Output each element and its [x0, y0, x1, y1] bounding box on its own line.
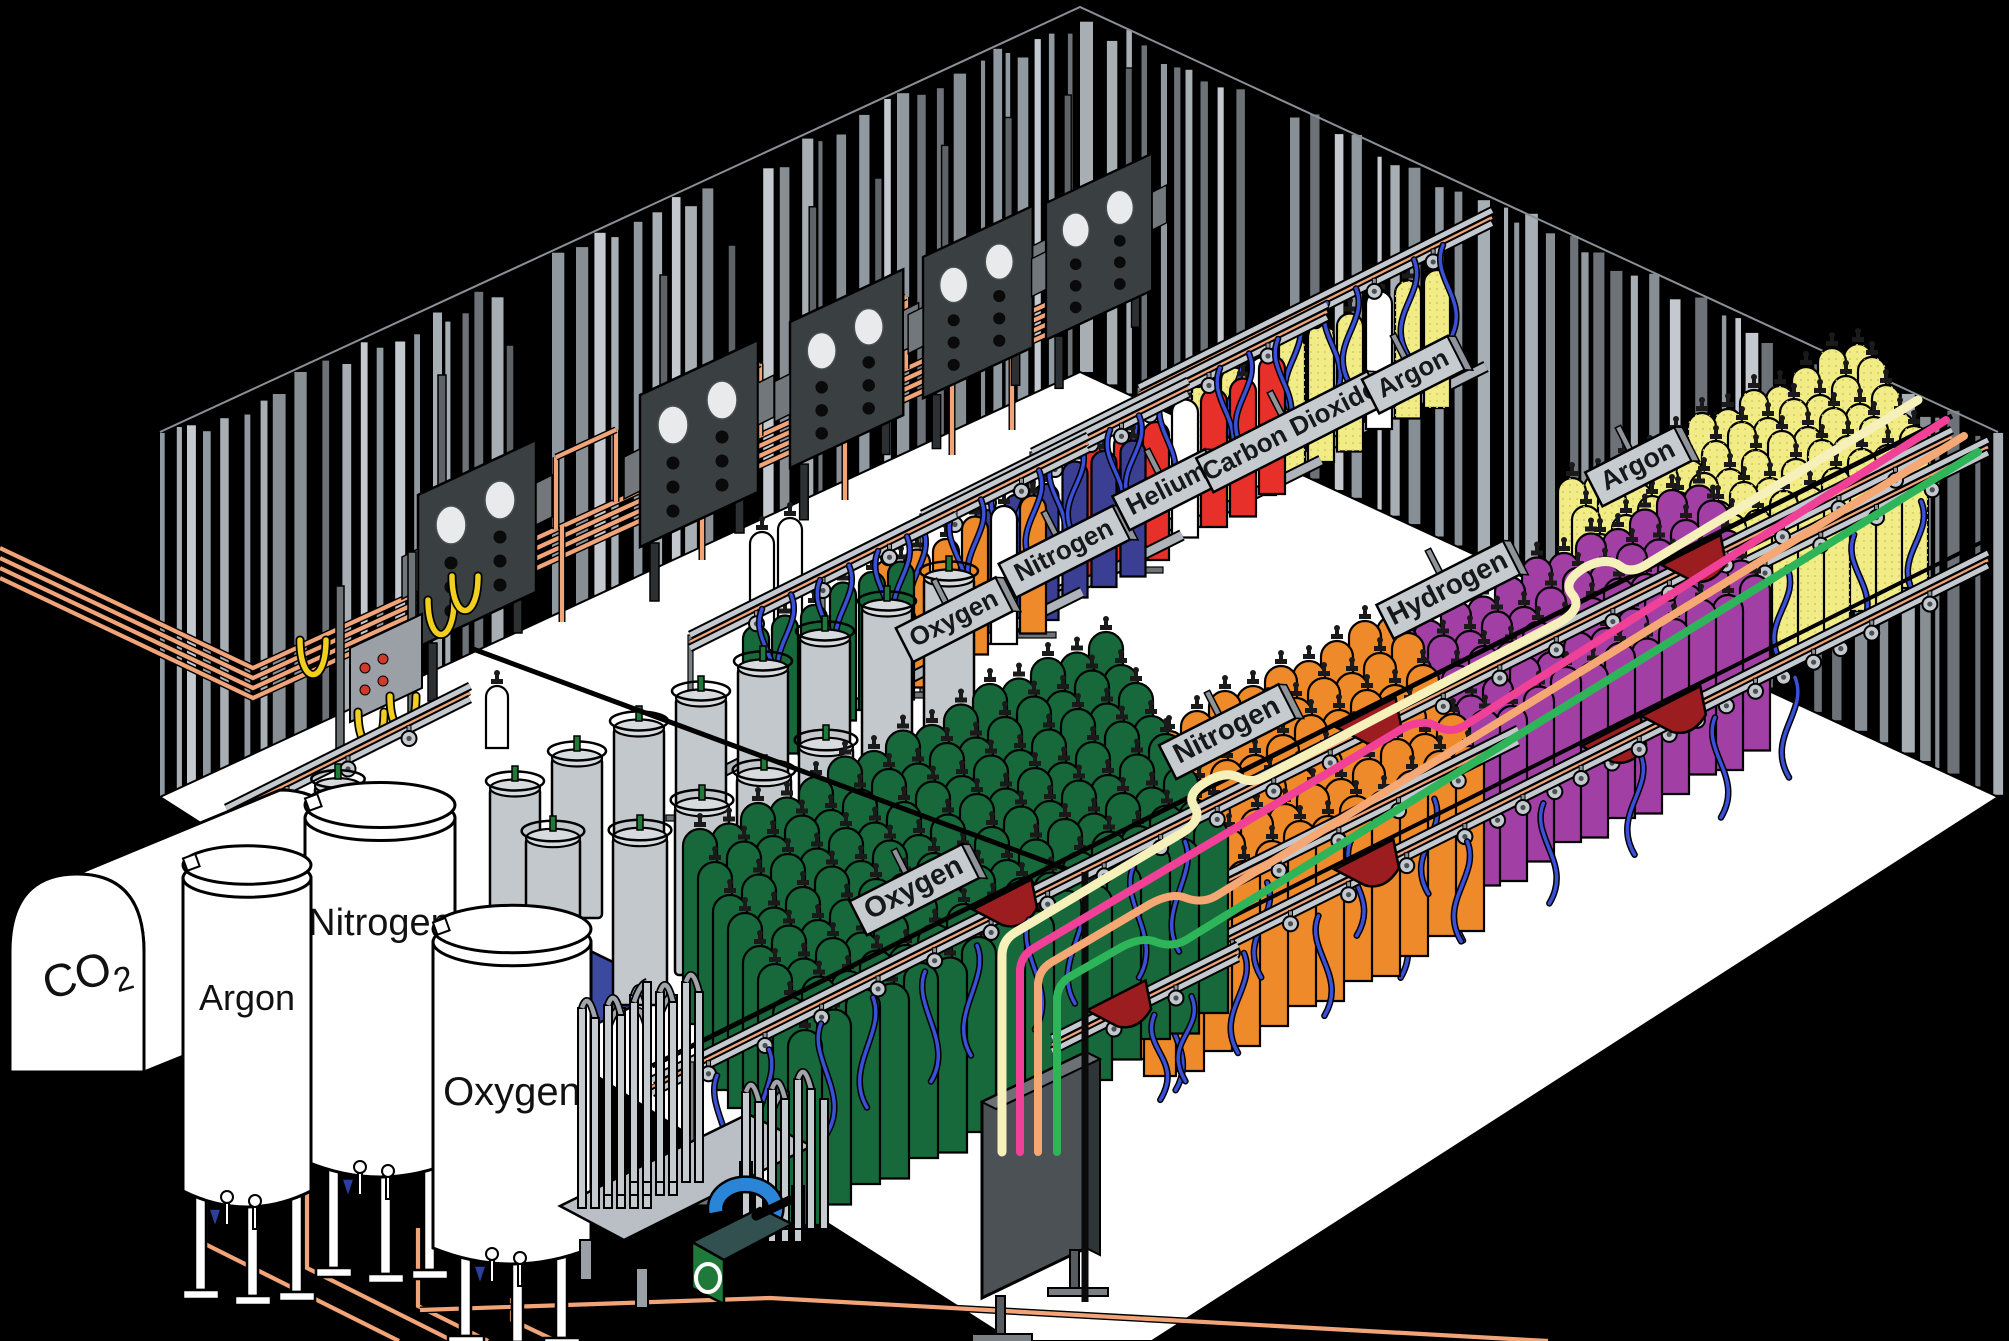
liquid-dewar [609, 815, 672, 1005]
storage-tank-argon: Argon [183, 846, 315, 1305]
tank-label: Nitrogen [308, 902, 452, 944]
gas-filling-plant-illustration: CO2NitrogenArgonOxygenOxygenNitrogenHeli… [0, 0, 2009, 1341]
plant-isometric-diagram: CO2NitrogenArgonOxygenOxygenNitrogenHeli… [0, 0, 2009, 1341]
tank-label: Argon [199, 977, 295, 1018]
tank-label: Oxygen [443, 1070, 581, 1114]
